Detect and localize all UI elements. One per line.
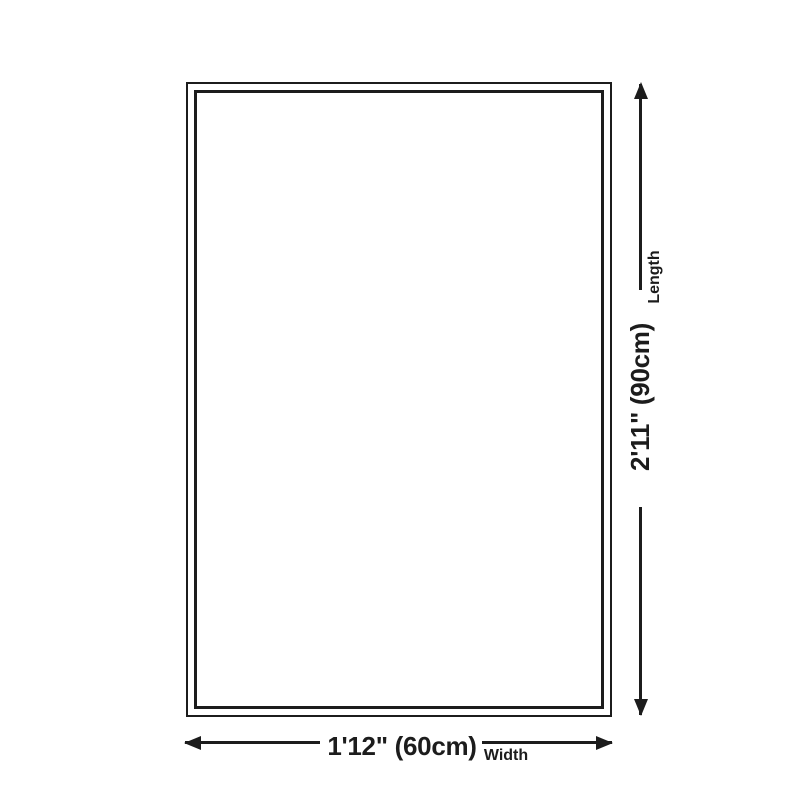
length-dimension-line-bottom bbox=[639, 507, 642, 715]
product-inner-outline bbox=[194, 90, 604, 709]
width-label: Width bbox=[484, 748, 528, 764]
arrow-down-icon bbox=[634, 699, 648, 716]
length-dimension-line-top bbox=[639, 84, 642, 290]
width-dimension-line-left bbox=[185, 741, 320, 744]
width-dimension-line-right bbox=[482, 741, 612, 744]
arrow-right-icon bbox=[596, 736, 613, 750]
product-dimension-diagram: 2'11" (90cm) Length 1'12" (60cm) Width bbox=[0, 0, 800, 800]
product-outline bbox=[186, 82, 612, 717]
length-label: Length bbox=[647, 250, 663, 303]
length-value: 2'11" (90cm) bbox=[627, 323, 653, 471]
width-value: 1'12" (60cm) bbox=[327, 733, 476, 759]
